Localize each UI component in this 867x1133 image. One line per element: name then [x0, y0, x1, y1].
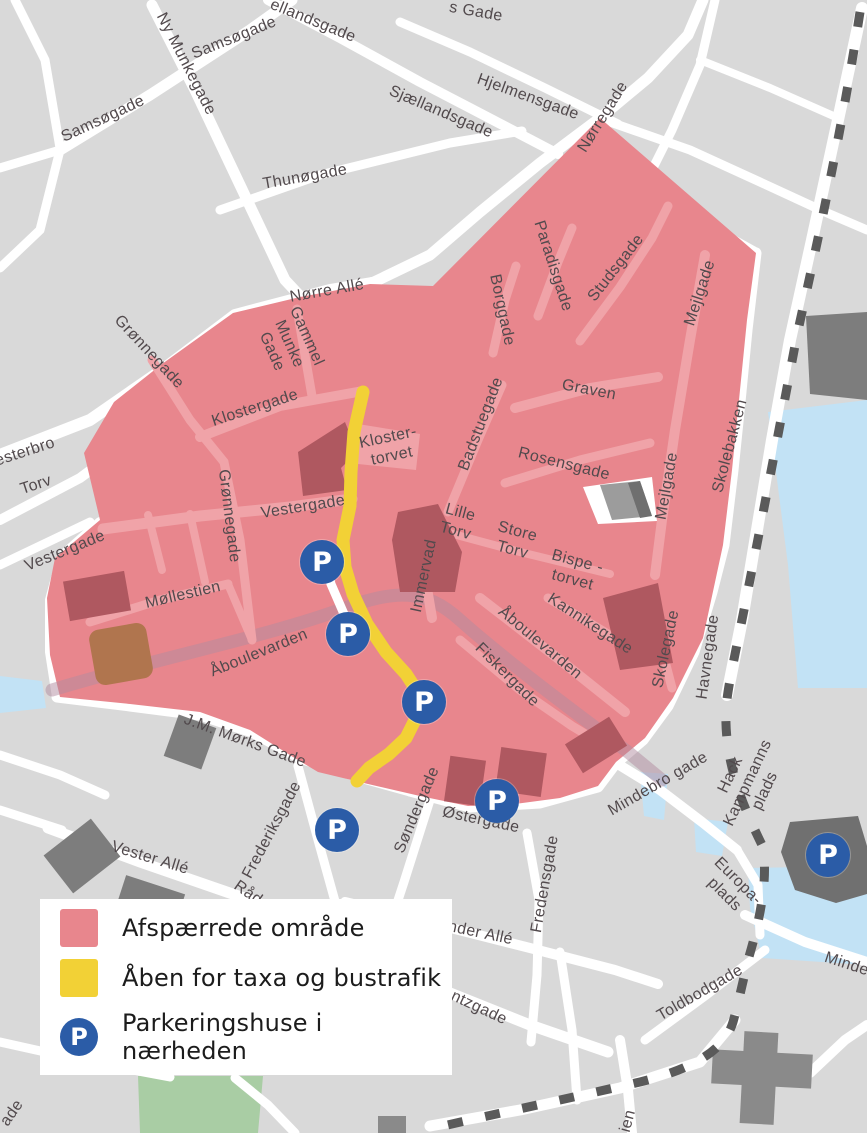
taxi-bus-route-swatch: [60, 959, 98, 997]
legend-label: Åben for taxa og bustrafik: [122, 964, 441, 992]
parking-icon: P: [60, 1018, 98, 1056]
parking-marker[interactable]: P: [806, 833, 850, 877]
legend: Afspærrede område Åben for taxa og bustr…: [40, 899, 452, 1075]
parking-marker[interactable]: P: [326, 612, 370, 656]
city-map: s GadeellandsgadeSamsøgadeNy MunkegadeSa…: [0, 0, 867, 1133]
legend-item-parking: P Parkeringshuse i nærheden: [60, 1009, 452, 1065]
legend-item-taxi-bus-route: Åben for taxa og bustrafik: [60, 959, 452, 997]
legend-label: Parkeringshuse i nærheden: [122, 1009, 452, 1065]
parking-marker[interactable]: P: [315, 808, 359, 852]
parking-marker[interactable]: P: [402, 680, 446, 724]
legend-label: Afspærrede område: [122, 914, 365, 942]
parking-marker[interactable]: P: [300, 540, 344, 584]
brown-building: [88, 621, 155, 686]
parking-marker[interactable]: P: [475, 779, 519, 823]
closed-area-swatch: [60, 909, 98, 947]
legend-item-closed-area: Afspærrede område: [60, 909, 452, 947]
